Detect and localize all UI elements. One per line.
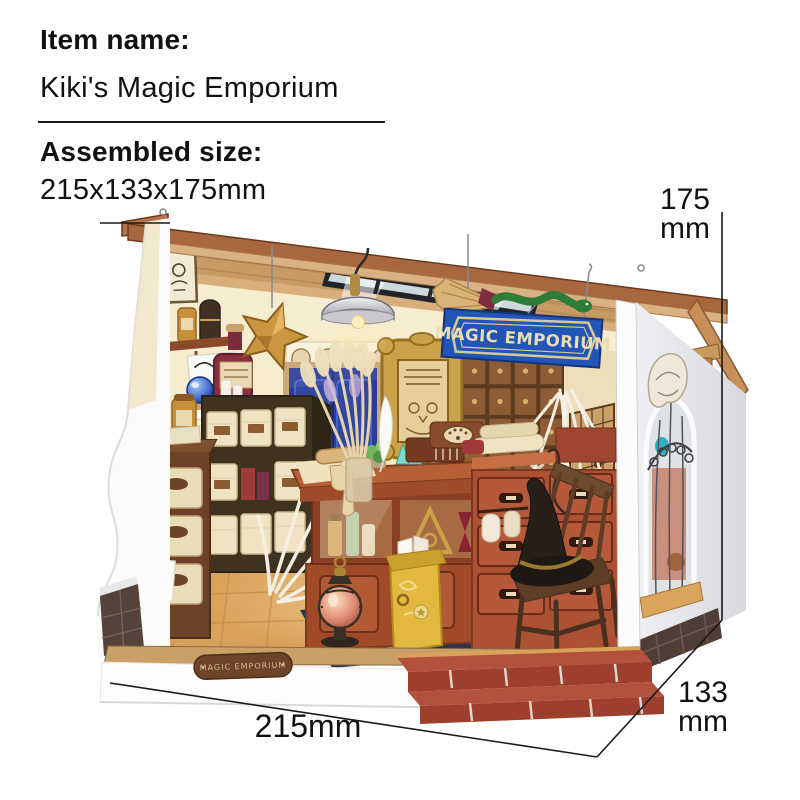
product-photo: MAGIC EMPORIUM bbox=[0, 0, 800, 800]
display-counter bbox=[292, 456, 486, 650]
brick-steps bbox=[396, 648, 664, 724]
product-listing-image: Item name: Kiki's Magic Emporium Assembl… bbox=[0, 0, 800, 800]
base-plaque: MAGIC EMPORIUM bbox=[194, 652, 293, 679]
left-side-wall bbox=[98, 218, 170, 658]
side-window bbox=[640, 396, 703, 618]
